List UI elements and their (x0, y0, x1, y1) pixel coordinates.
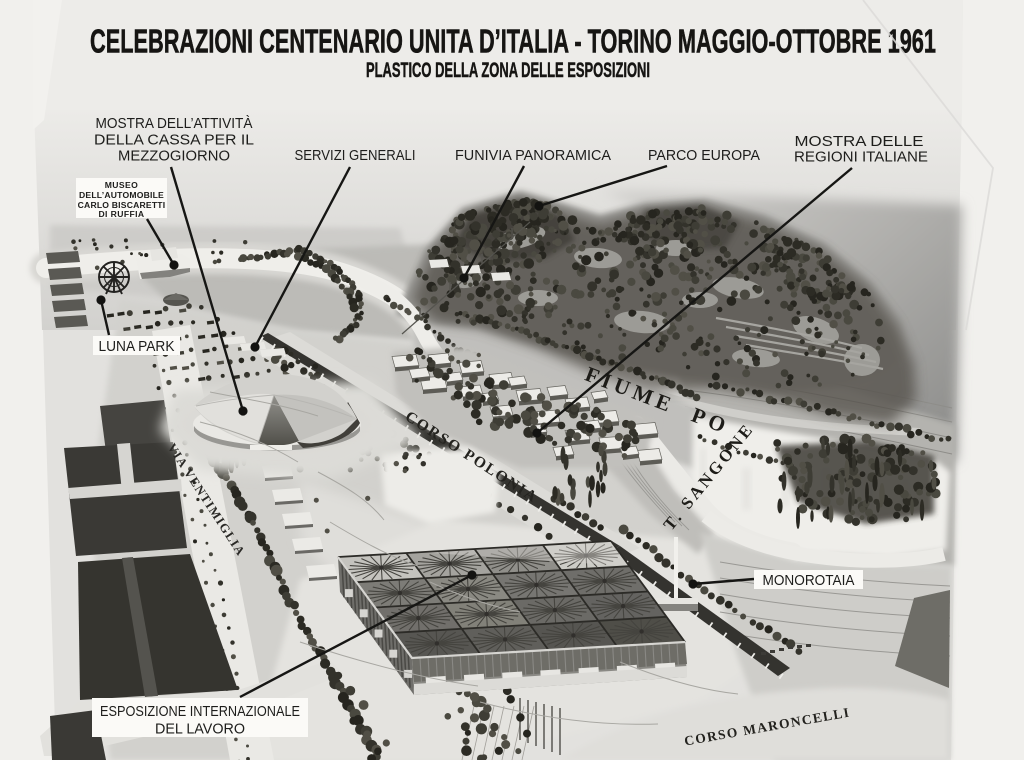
svg-text:MOSTRA DELLE: MOSTRA DELLE (795, 134, 924, 150)
svg-text:MONOROTAIA: MONOROTAIA (763, 573, 855, 589)
svg-text:DELLA CASSA PER IL: DELLA CASSA PER IL (94, 133, 254, 149)
svg-text:SERVIZI GENERALI: SERVIZI GENERALI (295, 148, 416, 164)
svg-text:CELEBRAZIONI CENTENARIO UNITA: CELEBRAZIONI CENTENARIO UNITA D’ITALIA -… (90, 23, 936, 60)
svg-text:PLASTICO DELLA ZONA DELLE ESPO: PLASTICO DELLA ZONA DELLE ESPOSIZIONI (366, 59, 650, 82)
svg-text:MUSEO: MUSEO (105, 180, 139, 190)
svg-text:LUNA PARK: LUNA PARK (99, 339, 175, 355)
svg-text:MEZZOGIORNO: MEZZOGIORNO (118, 149, 230, 165)
svg-text:DEL LAVORO: DEL LAVORO (155, 722, 245, 738)
svg-text:DI RUFFIA: DI RUFFIA (98, 209, 144, 219)
svg-text:ESPOSIZIONE INTERNAZIONALE: ESPOSIZIONE INTERNAZIONALE (100, 704, 300, 720)
svg-text:REGIONI ITALIANE: REGIONI ITALIANE (794, 150, 928, 166)
svg-text:MOSTRA DELL’ATTIVITÀ: MOSTRA DELL’ATTIVITÀ (96, 115, 253, 132)
svg-text:DELL’AUTOMOBILE: DELL’AUTOMOBILE (79, 190, 164, 200)
svg-text:PARCO EUROPA: PARCO EUROPA (648, 148, 760, 164)
svg-text:FUNIVIA PANORAMICA: FUNIVIA PANORAMICA (455, 148, 611, 164)
